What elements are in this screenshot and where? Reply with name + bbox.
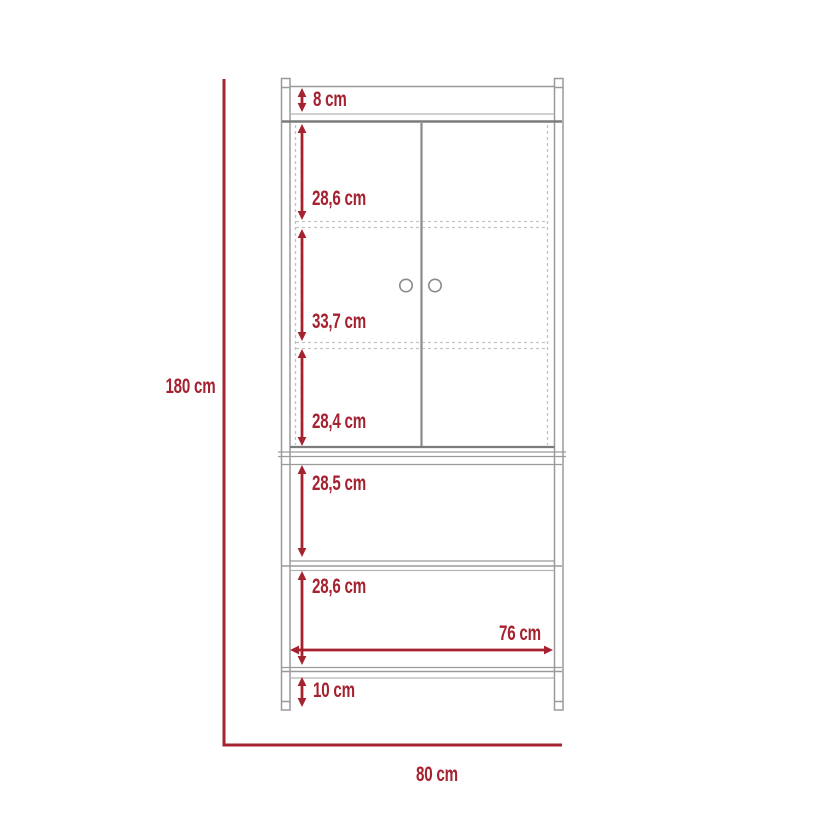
label-open-shelf-top: 28,5 cm [312,473,366,494]
label-base-height: 10 cm [313,680,355,701]
cabinet-doors [296,123,549,446]
dimension-diagram: 8 cm 28,6 cm 33,7 cm 28,4 cm 28,5 cm 28,… [0,0,840,840]
label-upper-door-section: 28,6 cm [312,188,366,209]
label-overall-width: 80 cm [416,764,458,785]
cabinet-right-post [555,79,564,711]
label-middle-door-section: 33,7 cm [312,311,366,332]
right-door-knob [429,279,441,291]
arrow-top-rail [298,88,307,112]
left-door-knob [400,279,412,291]
arrow-open-shelf-top [298,465,307,557]
arrow-inner-width [290,646,553,655]
label-inner-width: 76 cm [499,623,541,644]
label-lower-door-section: 28,4 cm [312,411,366,432]
label-open-shelf-bottom: 28,6 cm [312,576,366,597]
overall-height-width-line [224,79,562,745]
label-overall-height: 180 cm [165,376,215,397]
arrow-upper-door-section [298,124,307,220]
cabinet-line-drawing [0,0,840,840]
label-top-rail: 8 cm [313,89,347,110]
arrow-base-height [298,677,307,707]
overall-dimension-lines [224,79,562,745]
arrow-middle-door-section [298,229,307,341]
arrow-lower-door-section [298,349,307,446]
cabinet-left-post [282,79,291,711]
